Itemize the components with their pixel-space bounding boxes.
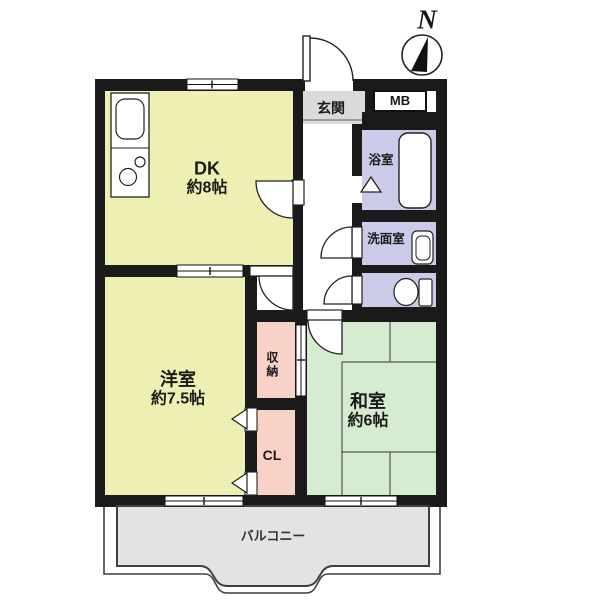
closet-folding-doors (232, 408, 257, 495)
japanese-room-window (325, 496, 397, 506)
washroom-label: 洗面室 (367, 232, 405, 246)
dk-western-sliding-door (177, 265, 243, 277)
dk-room-label: DK約8帖 (187, 158, 228, 197)
storage-sliding-door (296, 325, 306, 396)
washbasin-icon (412, 231, 433, 264)
north-indicator-label: N (417, 4, 437, 35)
japanese-room-door (307, 310, 342, 354)
japanese-room-label: 和室約6帖 (348, 391, 389, 430)
kitchen-sink-icon (116, 99, 144, 139)
closet-label: CL (263, 447, 282, 463)
front-door-leaf (303, 36, 310, 81)
front-door-swing-arc (310, 38, 353, 81)
stove-burner-icon (120, 169, 137, 186)
storage-label: 収納 (264, 351, 278, 379)
balcony-label: バルコニー (241, 530, 306, 545)
bathroom-label: 浴室 (368, 153, 393, 167)
entrance-label: 玄関 (317, 100, 345, 116)
western-room-label: 洋室約7.5帖 (151, 369, 205, 408)
fixtures-layer (0, 0, 600, 600)
stove-burner-icon (135, 157, 145, 167)
kitchen-counter-icon (111, 93, 149, 197)
dk-door (256, 180, 304, 218)
washroom-door (321, 227, 362, 258)
meter-box: MB (373, 90, 427, 112)
entrance-opening (305, 79, 353, 91)
bathtub-icon (399, 133, 431, 208)
floor-plan: MB (0, 0, 600, 600)
bathroom-door-opening (352, 176, 362, 203)
dk-window (187, 79, 238, 90)
western-room-window (165, 496, 243, 506)
toilet-icon (394, 279, 432, 307)
bathroom-door-triangle (361, 177, 381, 192)
meter-box-label: MB (390, 93, 410, 108)
compass-icon (402, 35, 442, 75)
toilet-door (324, 276, 362, 304)
